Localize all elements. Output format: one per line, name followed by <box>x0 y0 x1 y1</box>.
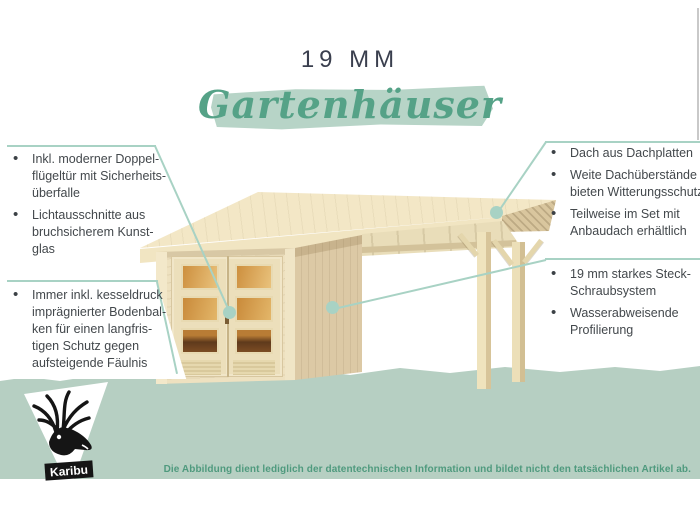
canopy-post-front <box>477 232 491 389</box>
feature-list-left-top: Inkl. moderner Doppel- flügeltür mit Sic… <box>10 151 175 263</box>
list-item: Teilweise im Set mit Anbaudach erhältlic… <box>548 206 700 240</box>
post-brace <box>458 233 479 257</box>
callout-line <box>7 280 158 282</box>
door-glass-pane <box>181 296 219 322</box>
list-item: 19 mm starkes Steck- Schraubsystem <box>548 266 700 300</box>
door-leaf-right <box>228 259 280 374</box>
logo-text: Karibu <box>50 463 89 480</box>
door-glass-pane <box>181 328 219 354</box>
door-leaf-left <box>174 259 226 374</box>
deer-logo: Karibu <box>18 376 112 494</box>
door-glass-pane <box>235 296 273 322</box>
list-item: Inkl. moderner Doppel- flügeltür mit Sic… <box>10 151 175 202</box>
list-item: Lichtausschnitte aus bruchsicherem Kunst… <box>10 207 175 258</box>
list-item: Dach aus Dachplatten <box>548 145 700 162</box>
door-glass-pane <box>235 328 273 354</box>
callout-dot-door <box>223 306 236 319</box>
door-glass-pane <box>235 264 273 290</box>
door-slat-panel <box>179 360 221 375</box>
callout-dot-wall <box>326 301 339 314</box>
list-item: Weite Dachüberstände bieten Witterungssc… <box>548 167 700 201</box>
page-title: Gartenhäuser <box>190 82 510 127</box>
disclaimer-text: Die Abbildung dient lediglich der datent… <box>164 464 691 475</box>
list-item: Immer inkl. kesseldruck imprägnierter Bo… <box>10 287 175 372</box>
feature-list-right-bottom: 19 mm starkes Steck- Schraubsystem Wasse… <box>548 266 700 344</box>
door-slat-panel <box>233 360 275 375</box>
feature-list-right-top: Dach aus Dachplatten Weite Dachüberständ… <box>548 145 700 245</box>
callout-dot-roof <box>490 206 503 219</box>
callout-line <box>545 141 700 143</box>
size-label: 19 MM <box>0 46 700 74</box>
product-infographic: 19 MM Gartenhäuser Inkl. moderner Doppel… <box>0 0 700 525</box>
page-edge-line <box>697 8 699 140</box>
post-brace <box>492 239 514 266</box>
callout-line <box>7 145 156 147</box>
callout-line <box>497 141 547 212</box>
list-item: Wasserabweisende Profilierung <box>548 305 700 339</box>
feature-list-left-bottom: Immer inkl. kesseldruck imprägnierter Bo… <box>10 287 175 377</box>
callout-line <box>545 258 700 260</box>
